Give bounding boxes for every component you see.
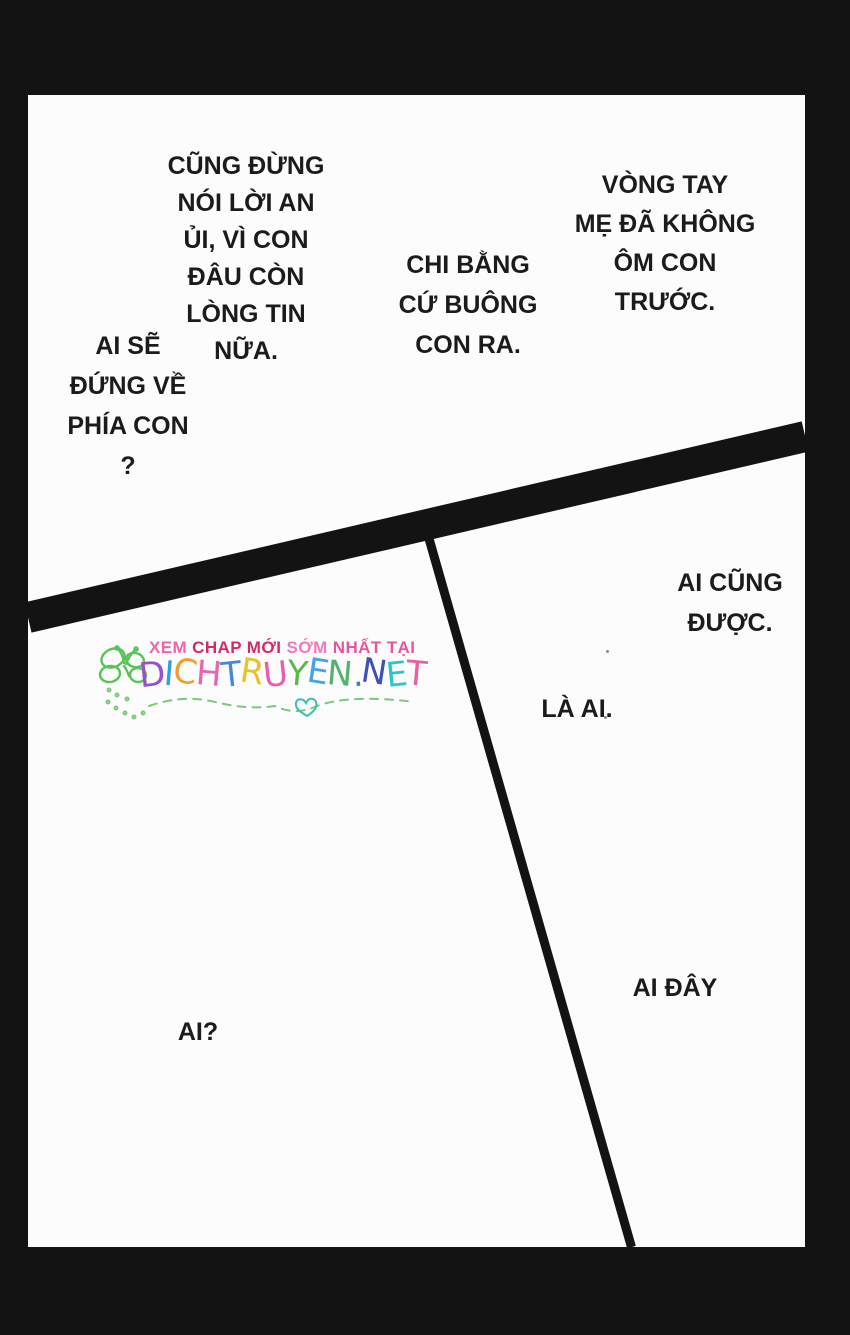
speech-text-who-is-it: LÀ AI. bbox=[517, 690, 637, 729]
speech-text-who-will-side: AI SẼ ĐỨNG VỀ PHÍA CON ? bbox=[48, 326, 208, 486]
speech-text-mothers-arms: VÒNG TAY MẸ ĐÃ KHÔNG ÔM CON TRƯỚC. bbox=[570, 166, 760, 322]
dust-speck bbox=[604, 716, 607, 719]
manga-page: CŨNG ĐỪNG NÓI LỜI AN ỦI, VÌ CON ĐÂU CÒN … bbox=[0, 0, 850, 1335]
speech-text-anyone-is-fine: AI CŨNG ĐƯỢC. bbox=[655, 563, 805, 643]
translator-watermark: XEM CHAP MỚI SỚM NHẤT TẠI DICHTRUYEN.NET bbox=[95, 630, 445, 730]
dust-speck bbox=[606, 650, 609, 653]
dashed-trail-icon bbox=[103, 686, 433, 730]
speech-text-who: AI? bbox=[138, 1013, 258, 1052]
speech-text-someone-here: AI ĐÂY bbox=[605, 969, 745, 1008]
speech-text-better-let-go: CHI BẰNG CỨ BUÔNG CON RA. bbox=[388, 245, 548, 365]
